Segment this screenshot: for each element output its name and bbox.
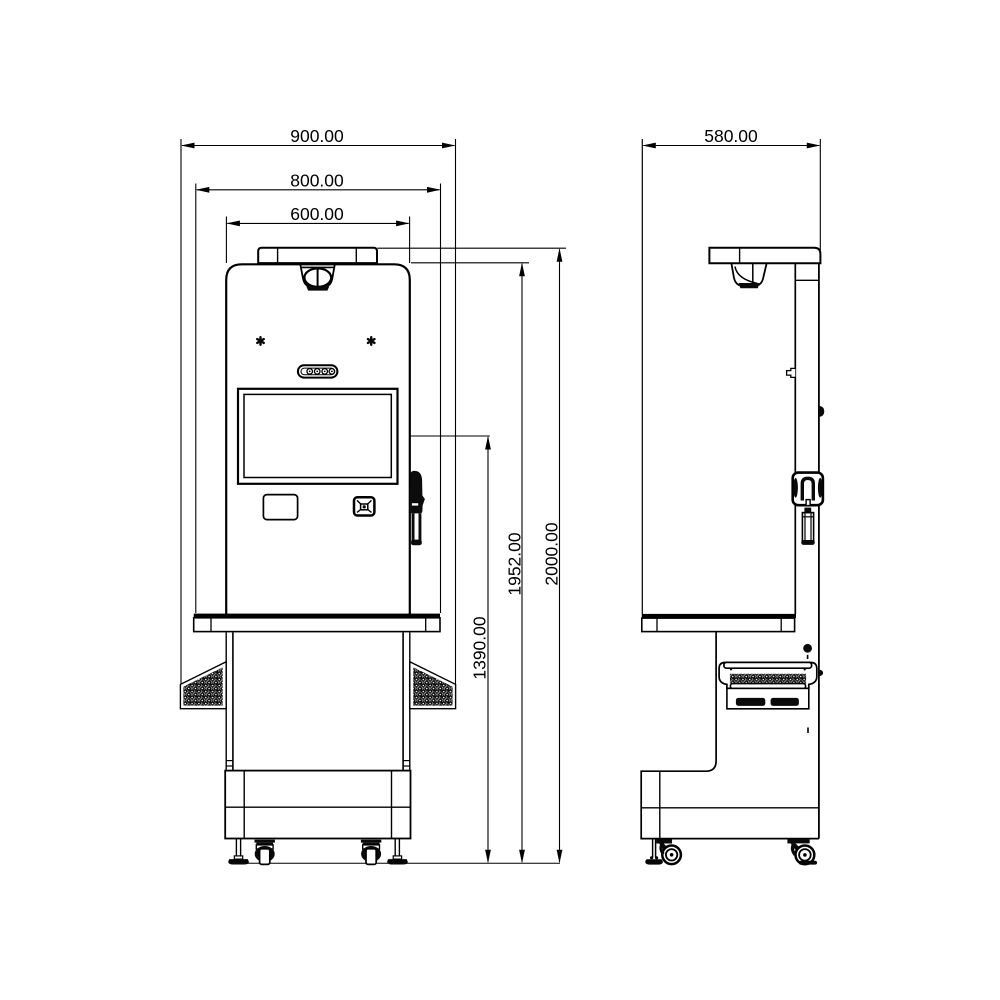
svg-text:600.00: 600.00 xyxy=(290,204,344,224)
svg-text:2000.00: 2000.00 xyxy=(542,522,562,586)
svg-text:1952.00: 1952.00 xyxy=(505,532,525,596)
svg-text:900.00: 900.00 xyxy=(290,126,344,146)
svg-text:1390.00: 1390.00 xyxy=(470,616,490,680)
svg-text:800.00: 800.00 xyxy=(290,171,344,191)
svg-text:580.00: 580.00 xyxy=(704,126,758,146)
